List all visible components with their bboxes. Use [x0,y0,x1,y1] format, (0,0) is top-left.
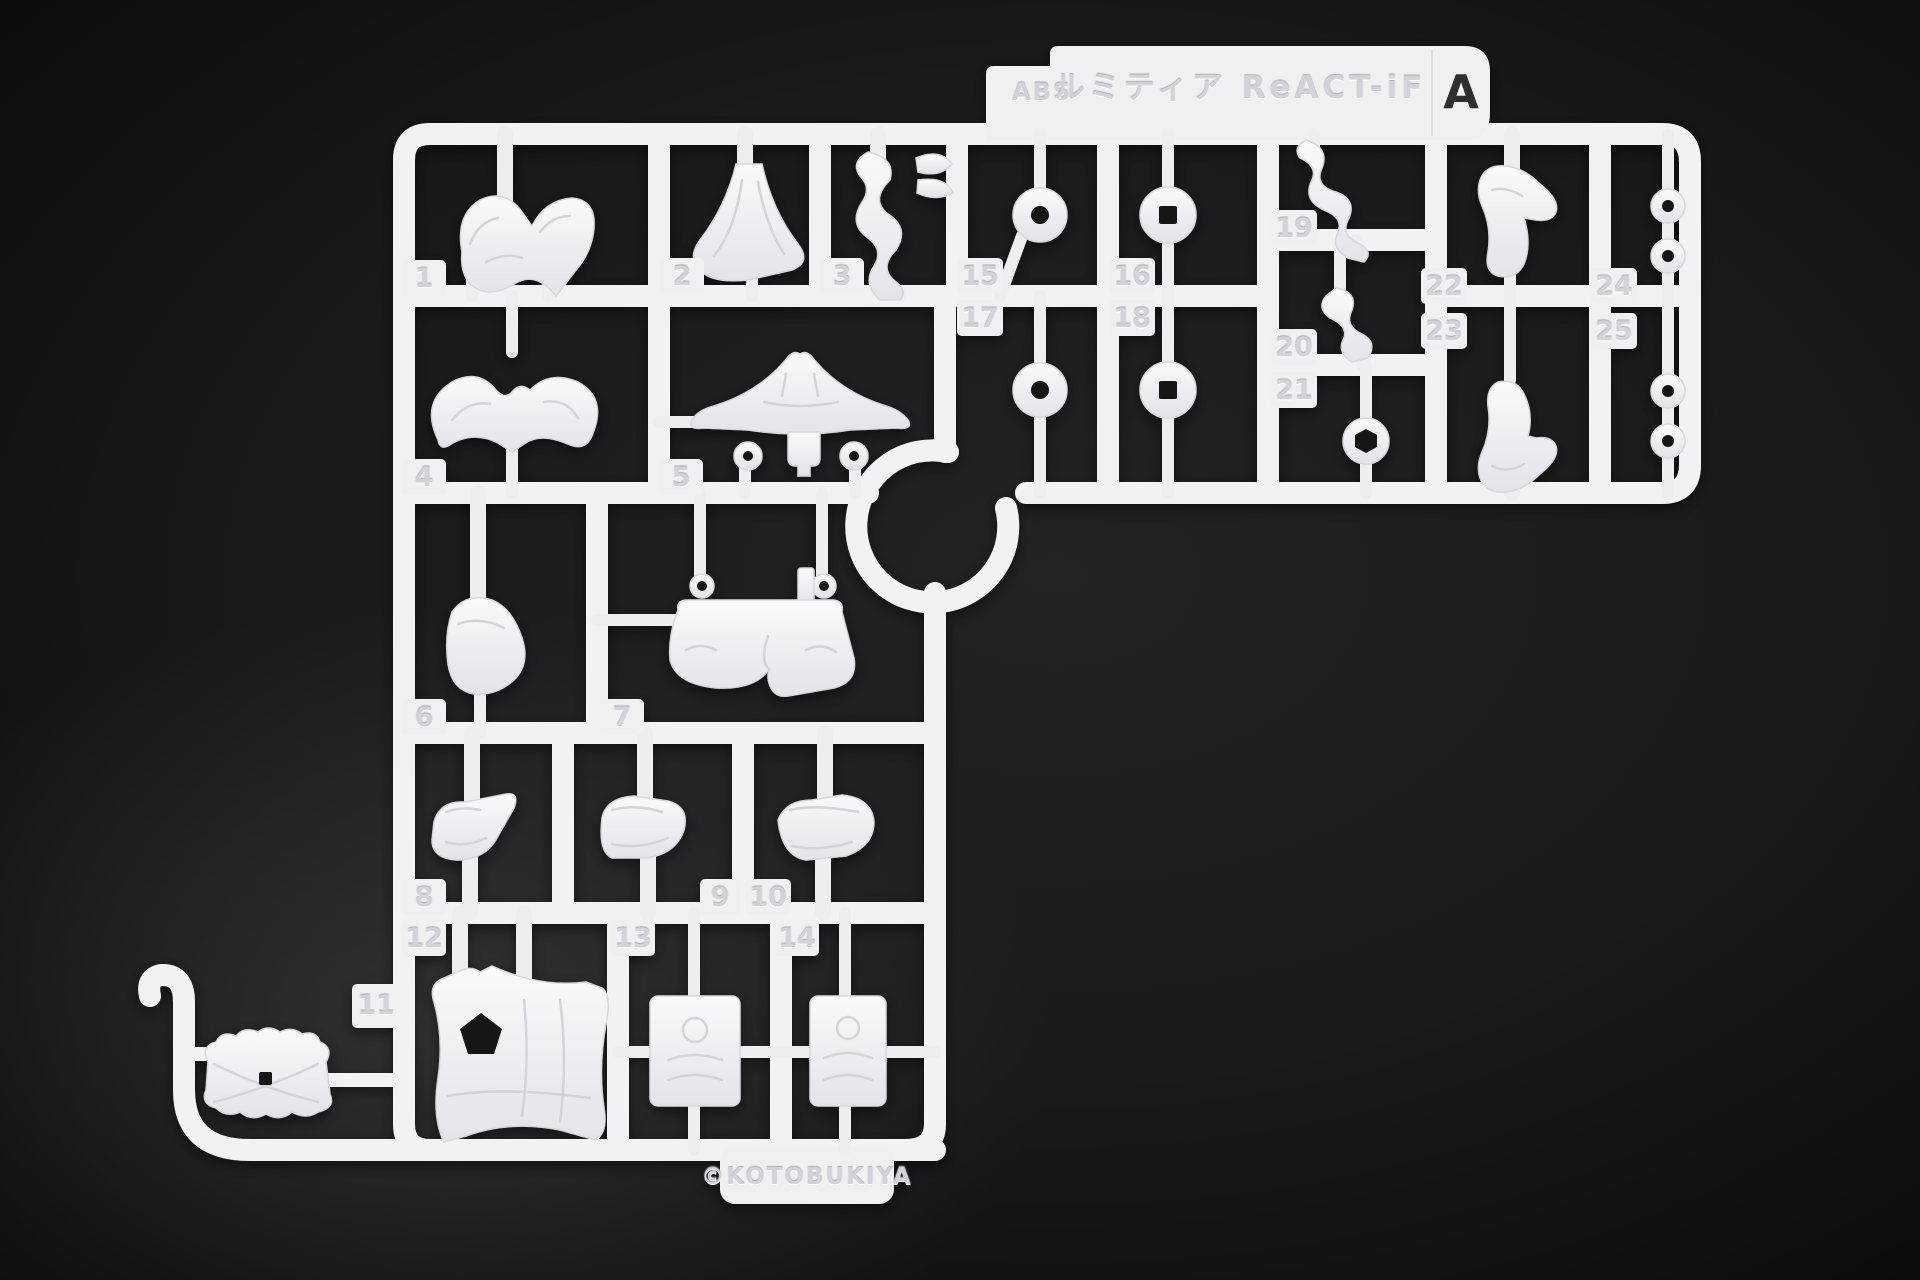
part-number-14: 14 [778,923,816,954]
part-21-hex-ring [1343,418,1389,464]
part-16-square-ring [1140,187,1196,243]
part-12-skirt [432,966,608,1142]
part-number-tab-17: 17 [957,300,1003,336]
part-number-tab-22: 22 [1421,268,1467,304]
part-5-hat-roof [691,353,910,476]
part-number-8: 8 [415,882,434,913]
part-number-6: 6 [415,702,434,733]
part-7-hips [670,568,855,696]
part-number-tab-10: 10 [745,879,791,915]
part-number-7: 7 [613,702,632,733]
part-22-boot [1478,166,1556,277]
part-number-tab-6: 6 [402,699,446,735]
part-15-ring [1013,188,1067,242]
part-10-flounce [778,795,874,860]
part-number-17: 17 [961,303,999,334]
part-number-tab-20: 20 [1271,329,1317,365]
runner-sprue: ABS ルミティア ReACT-iF A ©KOTOBUKIYA [0,0,1920,1280]
part-number-tab-24: 24 [1591,268,1637,304]
part-number-20: 20 [1275,332,1313,363]
part-number-tab-2: 2 [660,258,704,294]
part-number-tab-19: 19 [1271,210,1317,246]
part-number-tab-9: 9 [700,879,740,915]
part-number-24: 24 [1595,271,1633,302]
part-number-19: 19 [1275,213,1313,244]
part-number-tab-5: 5 [659,459,703,495]
part-number-23: 23 [1425,316,1463,347]
part-number-5: 5 [672,462,691,493]
copyright-tab: ©KOTOBUKIYA [701,1146,912,1204]
part-3-twisted-strand [856,152,953,300]
part-number-tab-11: 11 [352,984,400,1028]
part-number-tab-13: 13 [611,920,655,956]
part-number-tab-4: 4 [402,459,446,495]
runner-letter: A [1443,65,1479,119]
part-number-tab-14: 14 [775,920,819,956]
part-number-3: 3 [833,261,852,292]
part-number-1: 1 [415,263,434,294]
part-number-tab-1: 1 [402,260,446,296]
part-number-tab-15: 15 [957,258,1003,294]
part-number-25: 25 [1595,316,1633,347]
part-number-9: 9 [711,882,730,913]
part-number-12: 12 [405,923,443,954]
part-8-flounce [432,794,516,860]
photo-of-model-kit-runner: ABS ルミティア ReACT-iF A ©KOTOBUKIYA [0,0,1920,1280]
part-number-16: 16 [1113,261,1151,292]
part-18-square-ring [1140,362,1196,418]
part-number-tab-16: 16 [1109,258,1155,294]
part-1-lace-trim [460,196,594,296]
part-4-twin-tails [432,377,598,452]
part-9-flounce [601,796,685,858]
part-6-cuff [447,598,525,694]
part-number-13: 13 [614,923,652,954]
series-title-marking: ルミティア ReACT-iF [1054,70,1427,106]
part-number-2: 2 [673,261,692,292]
part-number-tab-25: 25 [1591,313,1637,349]
part-13-plate [650,996,740,1106]
part-number-22: 22 [1425,271,1463,302]
part-23-boot [1478,381,1556,492]
part-number-10: 10 [749,882,787,913]
part-number-15: 15 [961,261,999,292]
part-number-tab-7: 7 [600,699,644,735]
runner-label-tab: ABS ルミティア ReACT-iF A [986,46,1490,140]
part-number-tab-18: 18 [1109,300,1155,336]
part-number-21: 21 [1275,375,1313,406]
part-number-tab-12: 12 [402,920,446,956]
part-2-hair-piece [693,164,803,281]
part-20-twisted-strand [1322,288,1372,362]
part-number-tab-8: 8 [402,879,446,915]
part-11-scalloped-cuff [204,1028,331,1118]
part-number-11: 11 [357,990,395,1021]
part-14-plate [810,996,886,1106]
runner-c-hook [856,450,1008,602]
part-number-tab-3: 3 [820,258,864,294]
part-number-tab-21: 21 [1271,372,1317,408]
copyright-marking: ©KOTOBUKIYA [701,1164,912,1190]
part-number-18: 18 [1113,303,1151,334]
part-number-4: 4 [415,462,434,493]
part-17-ring [1013,363,1067,417]
part-number-tab-23: 23 [1421,313,1467,349]
